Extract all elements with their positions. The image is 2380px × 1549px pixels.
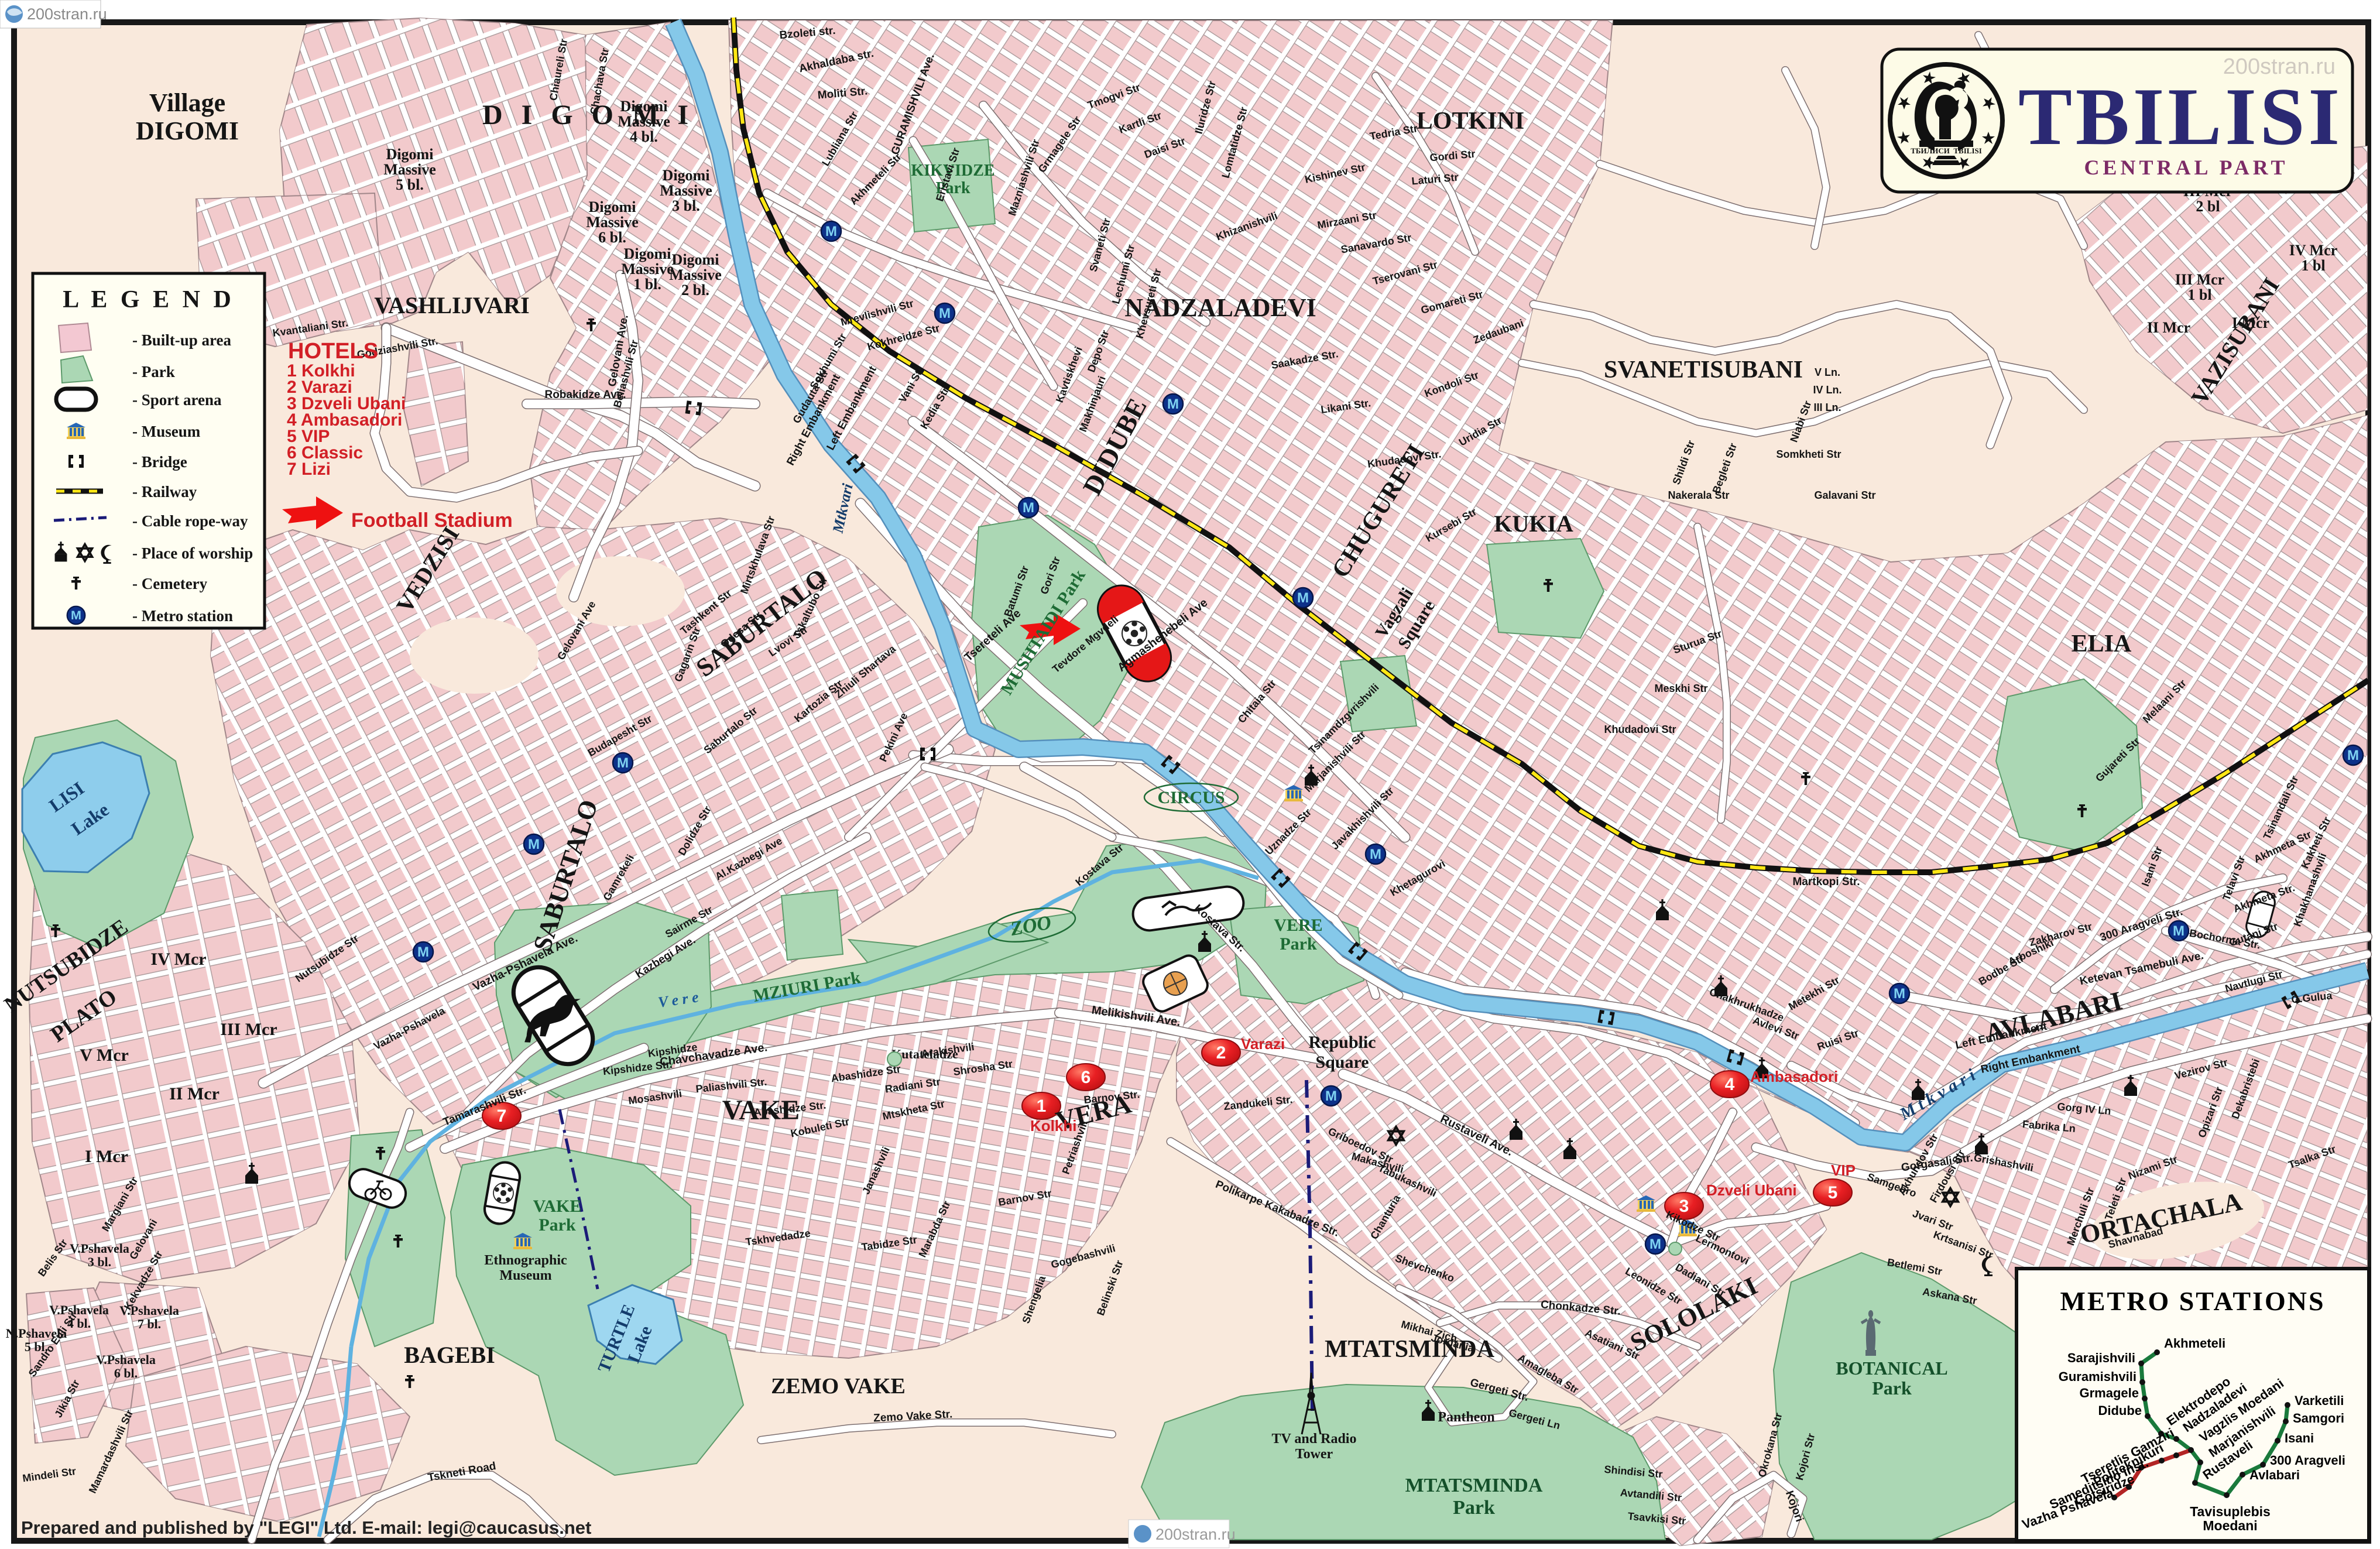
svg-text:4 bl.: 4 bl.: [67, 1316, 91, 1331]
svg-text:Village: Village: [149, 88, 225, 117]
svg-text:VIP: VIP: [1831, 1161, 1856, 1179]
svg-text:V.Pshavela: V.Pshavela: [49, 1303, 109, 1317]
svg-text:- Built-up area: - Built-up area: [132, 331, 232, 349]
svg-text:LOTKINI: LOTKINI: [1417, 108, 1524, 135]
svg-text:- Metro station: - Metro station: [132, 607, 233, 625]
svg-text:Khudadovi Str: Khudadovi Str: [1604, 724, 1676, 735]
svg-text:3 bl.: 3 bl.: [672, 197, 700, 214]
svg-text:III Mcr: III Mcr: [2175, 271, 2224, 288]
svg-text:V.Pshavela: V.Pshavela: [119, 1303, 179, 1318]
svg-text:ZEMO VAKE: ZEMO VAKE: [771, 1374, 906, 1399]
svg-text:Park: Park: [1872, 1377, 1912, 1399]
svg-text:6: 6: [1081, 1068, 1091, 1087]
svg-text:METRO STATIONS: METRO STATIONS: [2060, 1286, 2325, 1316]
svg-text:Digomi: Digomi: [672, 251, 719, 268]
svg-text:5 bl.: 5 bl.: [25, 1339, 48, 1354]
svg-text:Avlabari: Avlabari: [2249, 1468, 2300, 1482]
svg-text:3: 3: [1679, 1197, 1689, 1216]
svg-text:II Mcr: II Mcr: [169, 1084, 220, 1104]
svg-text:I Mcr: I Mcr: [85, 1147, 128, 1166]
svg-text:Didube: Didube: [2098, 1403, 2142, 1418]
svg-text:Digomi: Digomi: [620, 98, 668, 115]
svg-text:Grmagele: Grmagele: [2080, 1386, 2139, 1400]
svg-text:200stran.ru: 200stran.ru: [1155, 1526, 1236, 1543]
svg-text:Massive: Massive: [669, 266, 722, 283]
svg-text:N.Pshavela: N.Pshavela: [6, 1326, 67, 1341]
svg-text:- Bridge: - Bridge: [132, 453, 187, 471]
svg-text:Isani: Isani: [2285, 1431, 2314, 1445]
svg-text:200stran.ru: 200stran.ru: [2223, 54, 2336, 79]
svg-text:CENTRAL PART: CENTRAL PART: [2084, 156, 2288, 179]
svg-text:L E G E N D: L E G E N D: [63, 286, 235, 313]
svg-text:I Mcr: I Mcr: [2232, 314, 2269, 331]
svg-text:1 bl: 1 bl: [2301, 257, 2325, 274]
svg-text:Moedani: Moedani: [2203, 1518, 2257, 1533]
svg-text:SVANETISUBANI: SVANETISUBANI: [1604, 357, 1803, 383]
svg-text:III Ln.: III Ln.: [1814, 402, 1841, 413]
svg-text:Massive: Massive: [586, 214, 639, 231]
svg-text:2 bl: 2 bl: [2196, 198, 2220, 215]
svg-text:Ethnographic: Ethnographic: [484, 1253, 567, 1268]
svg-text:1 bl.: 1 bl.: [633, 276, 661, 293]
svg-text:CIRCUS: CIRCUS: [1157, 788, 1225, 807]
svg-text:Park: Park: [539, 1215, 576, 1235]
svg-text:Tavisuplebis: Tavisuplebis: [2190, 1504, 2271, 1519]
svg-text:Prepared and published by "LEG: Prepared and published by "LEGI" Ltd. E-…: [21, 1517, 591, 1538]
svg-text:Republic: Republic: [1308, 1033, 1376, 1052]
svg-text:Dzveli Ubani: Dzveli Ubani: [1706, 1181, 1797, 1199]
svg-text:Digomi: Digomi: [589, 198, 636, 215]
svg-text:Meskhi Str: Meskhi Str: [1654, 683, 1707, 694]
svg-text:5: 5: [1828, 1183, 1838, 1202]
svg-text:V.Pshavela: V.Pshavela: [96, 1352, 156, 1367]
svg-text:7 Lizi: 7 Lizi: [287, 460, 331, 479]
svg-text:Massive: Massive: [618, 113, 670, 130]
svg-text:Kolkhi: Kolkhi: [1030, 1117, 1076, 1135]
svg-text:Samgori: Samgori: [2293, 1411, 2344, 1425]
svg-text:Somkheti Str: Somkheti Str: [1776, 448, 1841, 460]
svg-text:Sarajishvili: Sarajishvili: [2067, 1351, 2135, 1365]
svg-text:BAGEBI: BAGEBI: [404, 1342, 495, 1368]
svg-text:Varazi: Varazi: [1241, 1035, 1285, 1053]
svg-text:4 bl.: 4 bl.: [630, 128, 658, 145]
svg-text:Massive: Massive: [660, 182, 712, 199]
svg-text:Pantheon: Pantheon: [1438, 1410, 1494, 1425]
svg-text:TBILISI: TBILISI: [2018, 71, 2343, 162]
svg-text:Massive: Massive: [621, 261, 674, 277]
svg-text:Football Stadium: Football Stadium: [351, 509, 513, 532]
svg-text:2: 2: [1216, 1043, 1226, 1063]
svg-text:6 bl.: 6 bl.: [598, 229, 626, 246]
svg-text:IV Mcr: IV Mcr: [2289, 242, 2338, 259]
svg-text:V Mcr: V Mcr: [80, 1046, 129, 1065]
svg-text:IV Ln.: IV Ln.: [1813, 384, 1842, 396]
svg-text:Martkopi Str.: Martkopi Str.: [1792, 876, 1860, 888]
svg-text:ТБИЛИСИ TBILISI: ТБИЛИСИ TBILISI: [1911, 146, 1982, 155]
svg-text:Akhmeteli: Akhmeteli: [2164, 1336, 2225, 1351]
svg-text:IV Mcr: IV Mcr: [150, 950, 206, 969]
svg-text:HOTELS: HOTELS: [288, 339, 378, 364]
svg-text:2 bl.: 2 bl.: [681, 282, 709, 299]
svg-text:V Ln.: V Ln.: [1815, 366, 1840, 378]
svg-text:Digomi: Digomi: [386, 146, 434, 163]
svg-text:Massive: Massive: [383, 161, 436, 178]
svg-text:DIGOMI: DIGOMI: [136, 116, 239, 145]
svg-text:Varketili: Varketili: [2295, 1393, 2344, 1408]
svg-text:- Park: - Park: [132, 363, 175, 381]
svg-text:200stran.ru: 200stran.ru: [27, 5, 107, 23]
svg-text:MTATSMINDA: MTATSMINDA: [1405, 1475, 1543, 1496]
svg-text:VAKE: VAKE: [533, 1197, 582, 1216]
svg-text:- Sport arena: - Sport arena: [132, 391, 222, 409]
svg-text:7: 7: [497, 1106, 507, 1126]
svg-text:Museum: Museum: [499, 1268, 551, 1283]
svg-text:3 bl.: 3 bl.: [88, 1255, 111, 1269]
svg-text:VERE: VERE: [1274, 916, 1322, 935]
svg-text:Park: Park: [1280, 934, 1317, 954]
svg-text:II Mcr: II Mcr: [2147, 319, 2190, 336]
svg-text:TV and Radio: TV and Radio: [1272, 1431, 1357, 1447]
svg-text:1: 1: [1037, 1096, 1047, 1116]
svg-text:BOTANICAL: BOTANICAL: [1836, 1358, 1947, 1379]
svg-text:Tower: Tower: [1295, 1447, 1333, 1462]
svg-text:Park: Park: [1453, 1497, 1495, 1519]
svg-text:7 bl.: 7 bl.: [138, 1317, 161, 1331]
svg-text:- Place of worship: - Place of worship: [132, 544, 253, 562]
svg-text:Digomi: Digomi: [663, 167, 710, 184]
svg-text:- Cemetery: - Cemetery: [132, 575, 208, 592]
svg-text:300 Aragveli: 300 Aragveli: [2270, 1453, 2345, 1468]
svg-text:Guramishvili: Guramishvili: [2059, 1369, 2136, 1384]
svg-text:6 bl.: 6 bl.: [114, 1366, 138, 1380]
svg-text:- Museum: - Museum: [132, 423, 201, 440]
svg-text:1 bl: 1 bl: [2187, 286, 2211, 303]
svg-text:ELIA: ELIA: [2072, 630, 2132, 657]
svg-text:- Cable rope-way: - Cable rope-way: [132, 512, 248, 530]
svg-text:Square: Square: [1315, 1053, 1369, 1072]
svg-text:KUKIA: KUKIA: [1494, 510, 1573, 537]
svg-text:Digomi: Digomi: [624, 245, 671, 262]
svg-text:V.Pshavela: V.Pshavela: [70, 1241, 129, 1256]
svg-text:Galavani Str: Galavani Str: [1814, 489, 1875, 501]
svg-text:III Mcr: III Mcr: [220, 1020, 277, 1039]
svg-text:Ambasadori: Ambasadori: [1750, 1068, 1838, 1085]
svg-text:VASHLIJVARI: VASHLIJVARI: [374, 292, 529, 318]
svg-text:4: 4: [1725, 1075, 1735, 1094]
svg-text:- Railway: - Railway: [132, 483, 197, 501]
svg-text:5 bl.: 5 bl.: [396, 176, 424, 193]
